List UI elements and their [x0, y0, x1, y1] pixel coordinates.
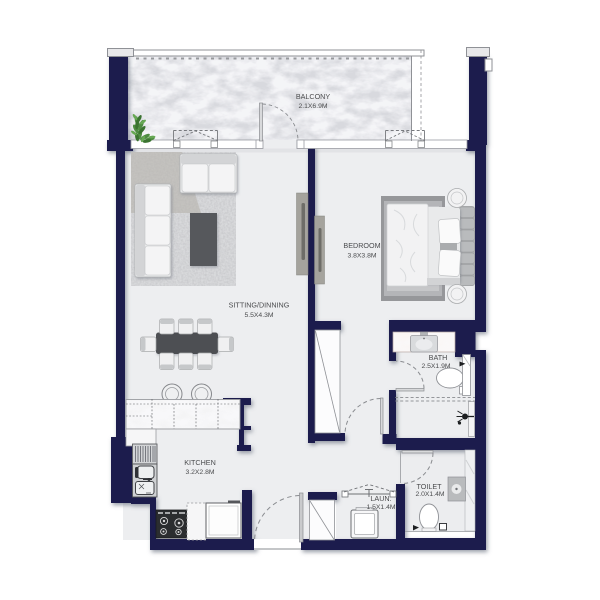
svg-text:KITCHEN: KITCHEN — [184, 458, 216, 467]
svg-text:5.5X4.3M: 5.5X4.3M — [244, 312, 273, 319]
svg-text:1.5X1.4M: 1.5X1.4M — [366, 504, 395, 511]
svg-text:TOILET: TOILET — [416, 482, 442, 491]
svg-text:3.8X3.8M: 3.8X3.8M — [347, 253, 376, 260]
svg-text:3.2X2.8M: 3.2X2.8M — [185, 469, 214, 476]
svg-text:2.1X6.9M: 2.1X6.9M — [298, 103, 327, 110]
svg-text:BALCONY: BALCONY — [296, 92, 331, 101]
svg-text:BATH: BATH — [429, 353, 448, 362]
svg-text:2.5X1.9M: 2.5X1.9M — [421, 363, 450, 370]
svg-text:2.0X1.4M: 2.0X1.4M — [415, 491, 444, 498]
svg-text:BEDROOM: BEDROOM — [343, 241, 380, 250]
svg-text:SITTING/DINNING: SITTING/DINNING — [229, 301, 290, 310]
svg-text:LAUN.: LAUN. — [370, 494, 391, 503]
